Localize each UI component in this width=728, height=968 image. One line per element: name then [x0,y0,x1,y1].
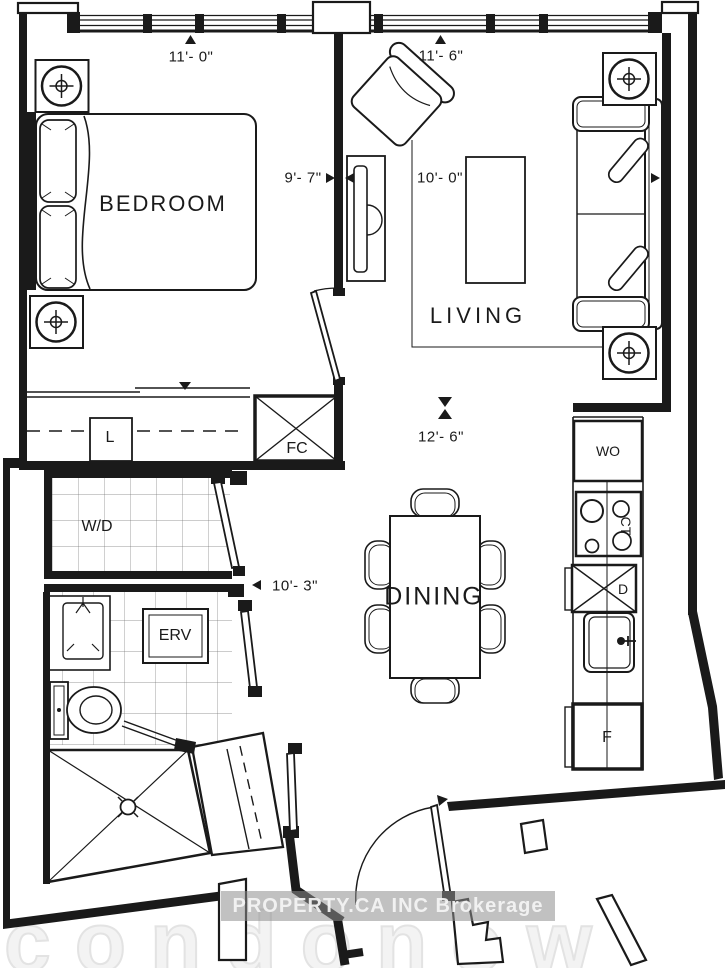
coffee-table [466,157,525,283]
closet-arrow-icon [179,382,191,390]
erv-label: ERV [159,628,192,644]
shower-drain-icon [121,800,136,815]
living-label: LIVING [430,305,526,327]
washer-dryer-label: W/D [81,519,112,535]
bedroom-door [311,288,340,381]
sofa [573,97,662,331]
fridge-label: F [602,730,612,746]
linen-label: L [106,430,115,446]
dim-living-width: 11'- 6" [419,49,464,64]
kitchen-counter [565,417,643,770]
dim-bedroom-depth: 9'- 7" [284,171,321,186]
bedroom-label: BEDROOM [99,193,227,215]
wall-oven-label: WO [596,444,620,458]
floor-plan-page: condonow [0,0,728,968]
hall-door [287,753,297,831]
fan-coil-label: FC [286,441,307,457]
dim-bedroom-width: 11'- 0" [169,50,214,65]
dim-dining-depth: 12'- 6" [418,430,464,445]
brokerage-watermark: PROPERTY.CA INC Brokerage [221,891,555,921]
dishwasher-label: D [618,582,628,596]
entry-door [356,795,455,905]
bedroom-closet [27,382,250,461]
bathroom-door [238,600,262,697]
dim-living-depth: 10'- 0" [417,171,463,186]
kitchen-sink [584,613,636,672]
vanity-sink [49,596,110,670]
floor-plan-drawing [0,0,728,968]
dining-label: DINING [384,585,484,610]
dim-hall: 10'- 3" [272,579,318,594]
cooktop-label: CT [619,517,633,536]
